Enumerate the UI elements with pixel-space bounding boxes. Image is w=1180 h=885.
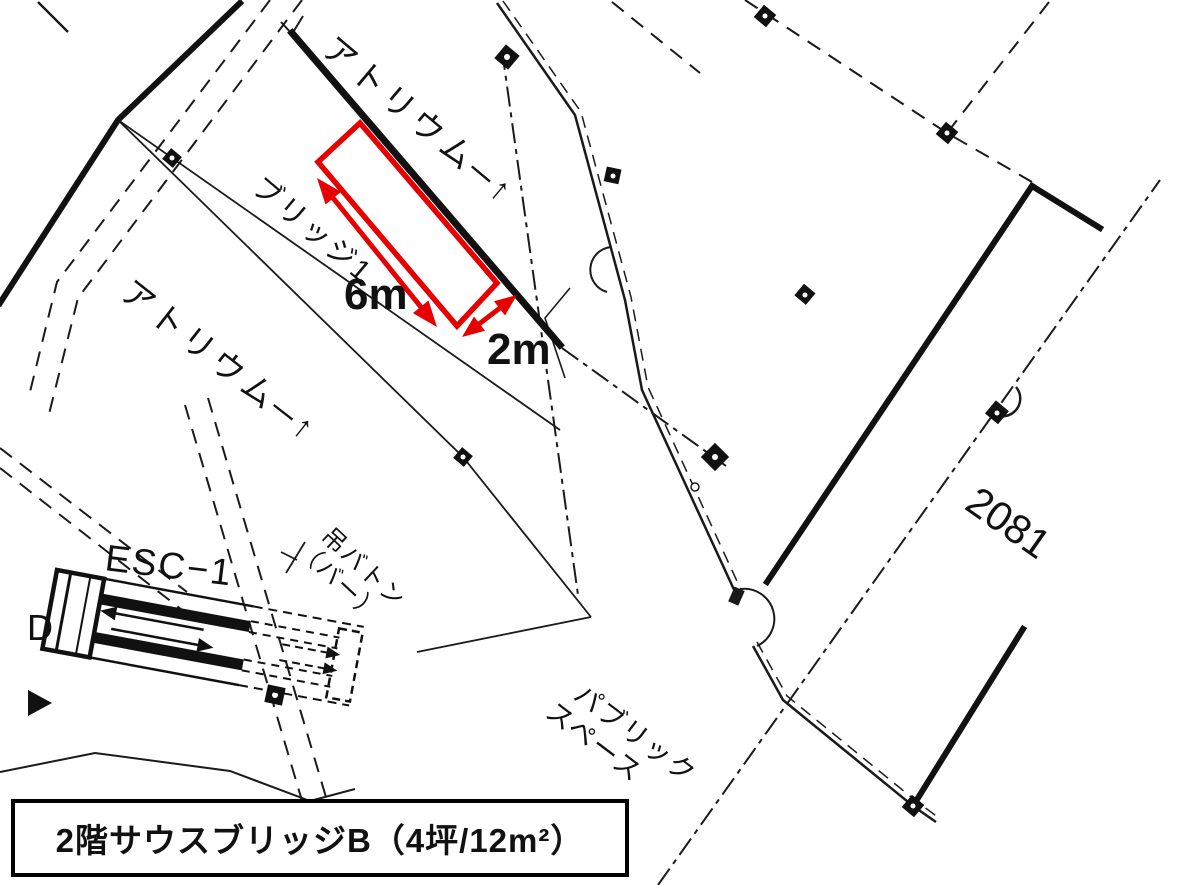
floor-plan-drawing: アトリウム─↑ アトリウム─↑ ブリッジ1 6m 2m ESC−1 吊バトン （…: [0, 0, 1180, 885]
batten-label: 吊バトン （バー）: [292, 517, 411, 633]
dimension-label-2m: 2m: [487, 325, 551, 374]
escalator-symbol: [42, 570, 363, 706]
column-marker: [794, 284, 815, 305]
column-marker: [936, 122, 959, 145]
hinge-circle: [691, 483, 699, 491]
door-arc-upper: [590, 247, 611, 292]
floor-plan-screenshot: アトリウム─↑ アトリウム─↑ ブリッジ1 6m 2m ESC−1 吊バトン （…: [0, 0, 1180, 885]
grid-letter-label: D: [27, 607, 53, 648]
column-marker: [701, 443, 729, 471]
atrium-label-left: アトリウム─↑: [114, 272, 326, 449]
public-space-label: パブリック スペース: [540, 672, 702, 815]
column-marker: [264, 684, 285, 705]
caption-text: 2階サウスブリッジB（4坪/12m²）: [56, 822, 585, 859]
column-marker: [494, 44, 519, 69]
dashed-construction-lines: [0, 0, 1049, 838]
atrium-railing: [497, 1, 939, 822]
column-marker: [604, 167, 622, 185]
room-number-label: 2081: [958, 478, 1059, 568]
wall-lines: [0, 3, 1100, 806]
dimension-label-6m: 6m: [344, 270, 408, 319]
door-arc-mid: [741, 589, 774, 646]
escalator-label: ESC−1: [103, 537, 235, 593]
caption-box: 2階サウスブリッジB（4坪/12m²）: [13, 801, 627, 875]
grid-arrow-icon: [28, 690, 52, 716]
